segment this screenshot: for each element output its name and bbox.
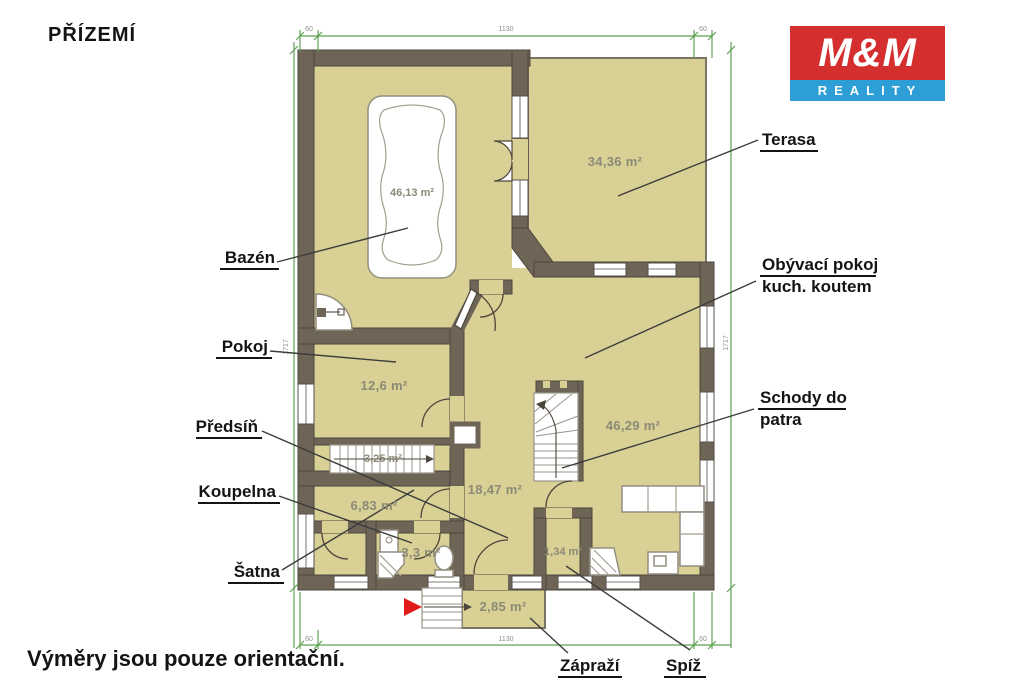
label-satna: Šatna	[234, 562, 281, 581]
window	[606, 576, 640, 589]
dimension-bottom-right: 60	[699, 636, 707, 643]
stair-header-notch	[543, 381, 550, 388]
window	[512, 576, 542, 589]
footnote: Výměry jsou pouze orientační.	[27, 646, 345, 672]
area-zaprazi: 2,85 m²	[480, 599, 527, 614]
leader-zaprazi	[530, 618, 568, 653]
counter	[622, 486, 704, 512]
area-satna: 6,83 m²	[351, 498, 398, 513]
floor-plan-svg: 60 1130 60 60 1130 60 1717 1717 Bazén Po…	[0, 0, 1024, 683]
area-schodiste: 3,25 m²	[364, 453, 402, 465]
toilet-tank	[435, 570, 453, 577]
door-opening	[474, 575, 508, 590]
area-koupelna: 3,3 m²	[401, 545, 441, 560]
label-terasa: Terasa	[762, 130, 816, 149]
door-opening	[546, 508, 572, 518]
dimension-top-left: 60	[305, 26, 313, 33]
stair-header-notch	[560, 381, 567, 388]
label-pokoj: Pokoj	[222, 337, 268, 356]
staircase-upper	[534, 393, 578, 481]
entrance-steps	[404, 588, 472, 628]
wall	[314, 438, 454, 445]
window	[648, 263, 676, 276]
floor-plan-page: 60 1130 60 60 1130 60 1717 1717 Bazén Po…	[0, 0, 1024, 683]
area-predsin: 18,47 m²	[468, 482, 523, 497]
logo-reality: REALITY	[790, 80, 945, 101]
door-opening	[322, 521, 348, 533]
stair-header-wall	[536, 381, 582, 394]
mm-reality-logo: M&M REALITY	[790, 26, 945, 101]
dimension-bottom-width: 1130	[498, 636, 513, 643]
door-opening	[479, 280, 503, 294]
area-spiz: 1,34 m²	[544, 546, 582, 558]
label-obyvaci-line1: Obývací pokoj	[762, 255, 878, 274]
logo-mm: M&M	[790, 26, 945, 80]
area-bazen: 46,13 m²	[390, 187, 434, 199]
stair-side-wall	[578, 381, 583, 481]
door-opening	[512, 139, 528, 181]
window	[558, 576, 592, 589]
label-schody-line1: Schody do	[760, 388, 847, 407]
window	[334, 576, 368, 589]
page-title: PŘÍZEMÍ	[48, 24, 136, 47]
label-predsin: Předsíň	[196, 417, 258, 436]
entry-steps	[422, 588, 462, 628]
sink-icon	[380, 530, 398, 554]
counter	[680, 512, 704, 566]
label-zaprazi: Zápraží	[560, 656, 621, 675]
label-obyvaci-line2: kuch. koutem	[762, 277, 872, 296]
label-schody-line2: patra	[760, 410, 802, 429]
kitchen-sink-icon	[654, 556, 666, 566]
dimension-top-right: 60	[699, 26, 707, 33]
wall	[298, 50, 314, 590]
label-koupelna: Koupelna	[199, 482, 277, 501]
door-opening	[414, 521, 440, 533]
wall	[298, 50, 530, 66]
area-terasa: 34,36 m²	[588, 154, 643, 169]
shower-head-icon	[317, 308, 326, 317]
dimension-bottom-left: 60	[305, 636, 313, 643]
area-obyvaci: 46,29 m²	[606, 418, 661, 433]
entrance-arrow-icon	[404, 598, 422, 616]
label-bazen: Bazén	[225, 248, 275, 267]
dimension-right-height: 1717	[723, 335, 730, 351]
label-spiz: Spíž	[666, 656, 701, 675]
area-pokoj: 12,6 m²	[361, 378, 408, 393]
dimension-top-width: 1130	[498, 26, 513, 33]
chimney-niche	[452, 424, 478, 446]
window	[594, 263, 626, 276]
window	[428, 576, 460, 589]
